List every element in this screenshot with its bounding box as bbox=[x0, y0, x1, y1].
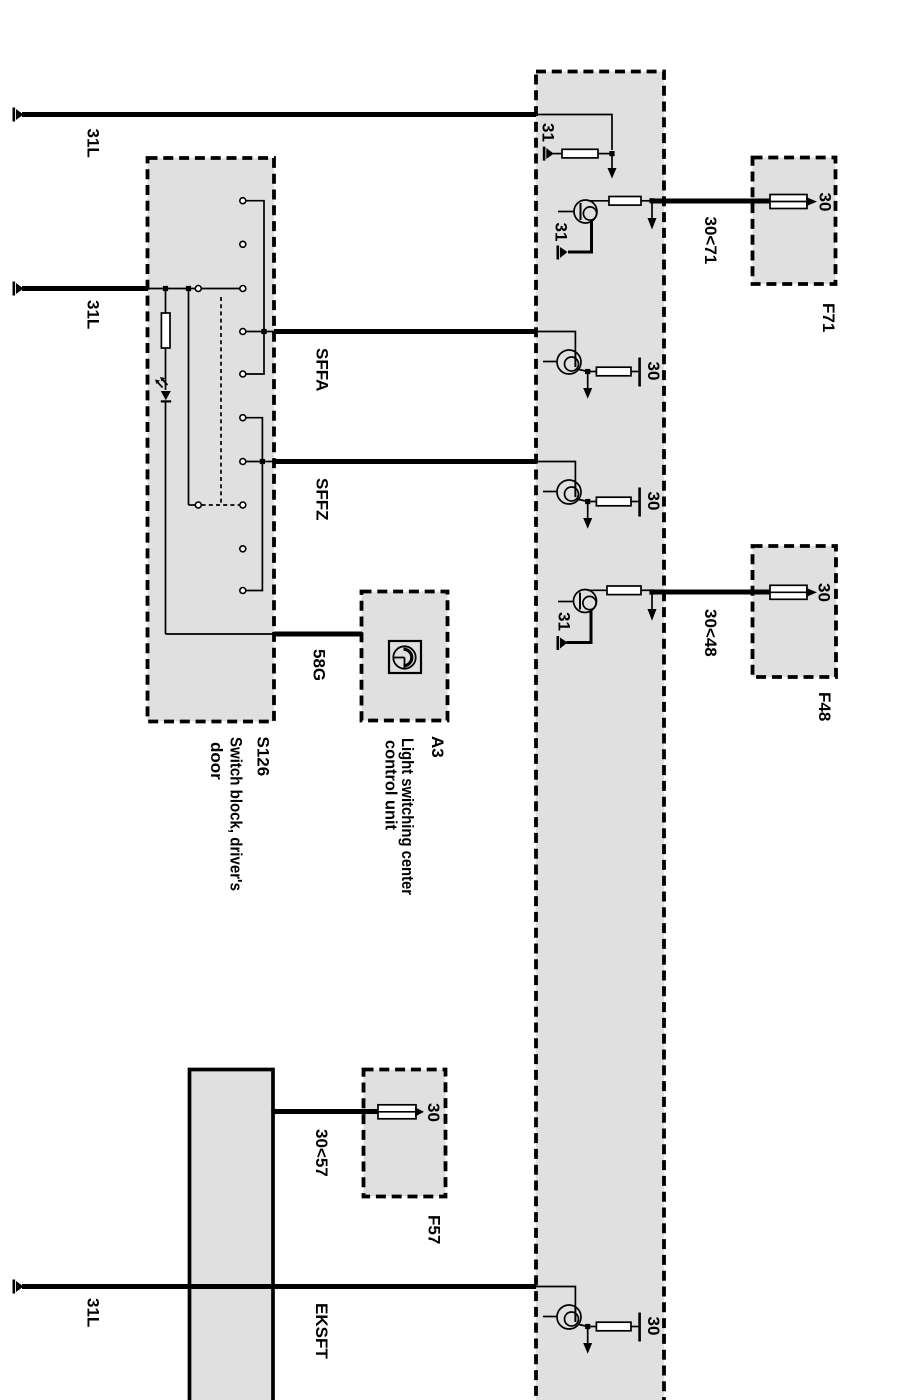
svg-text:control unit: control unit bbox=[381, 740, 400, 830]
svg-text:F71: F71 bbox=[819, 303, 838, 332]
svg-text:31L: 31L bbox=[84, 129, 103, 158]
svg-text:30: 30 bbox=[816, 193, 835, 212]
svg-text:30: 30 bbox=[424, 1103, 443, 1122]
svg-text:SFFA: SFFA bbox=[313, 348, 332, 391]
svg-text:30<48: 30<48 bbox=[701, 609, 720, 657]
svg-text:30: 30 bbox=[644, 362, 663, 381]
svg-text:31L: 31L bbox=[84, 1298, 103, 1327]
svg-text:door: door bbox=[207, 742, 226, 780]
svg-text:30: 30 bbox=[815, 583, 834, 602]
svg-text:SFFZ: SFFZ bbox=[313, 478, 332, 521]
svg-text:58G: 58G bbox=[310, 649, 329, 681]
svg-text:30: 30 bbox=[644, 492, 663, 511]
svg-text:F48: F48 bbox=[815, 692, 834, 721]
svg-text:31: 31 bbox=[552, 223, 571, 242]
svg-text:30<71: 30<71 bbox=[701, 217, 720, 265]
svg-text:31L: 31L bbox=[84, 300, 103, 329]
svg-text:30: 30 bbox=[644, 1317, 663, 1336]
svg-text:31: 31 bbox=[539, 123, 558, 142]
svg-text:31: 31 bbox=[555, 612, 574, 631]
svg-text:A3: A3 bbox=[428, 736, 447, 758]
svg-text:Switch block, driver's: Switch block, driver's bbox=[227, 737, 246, 891]
svg-text:S126: S126 bbox=[254, 737, 273, 777]
svg-text:EKSFT: EKSFT bbox=[312, 1303, 331, 1359]
svg-text:F57: F57 bbox=[425, 1215, 444, 1244]
svg-text:30<57: 30<57 bbox=[312, 1129, 331, 1177]
